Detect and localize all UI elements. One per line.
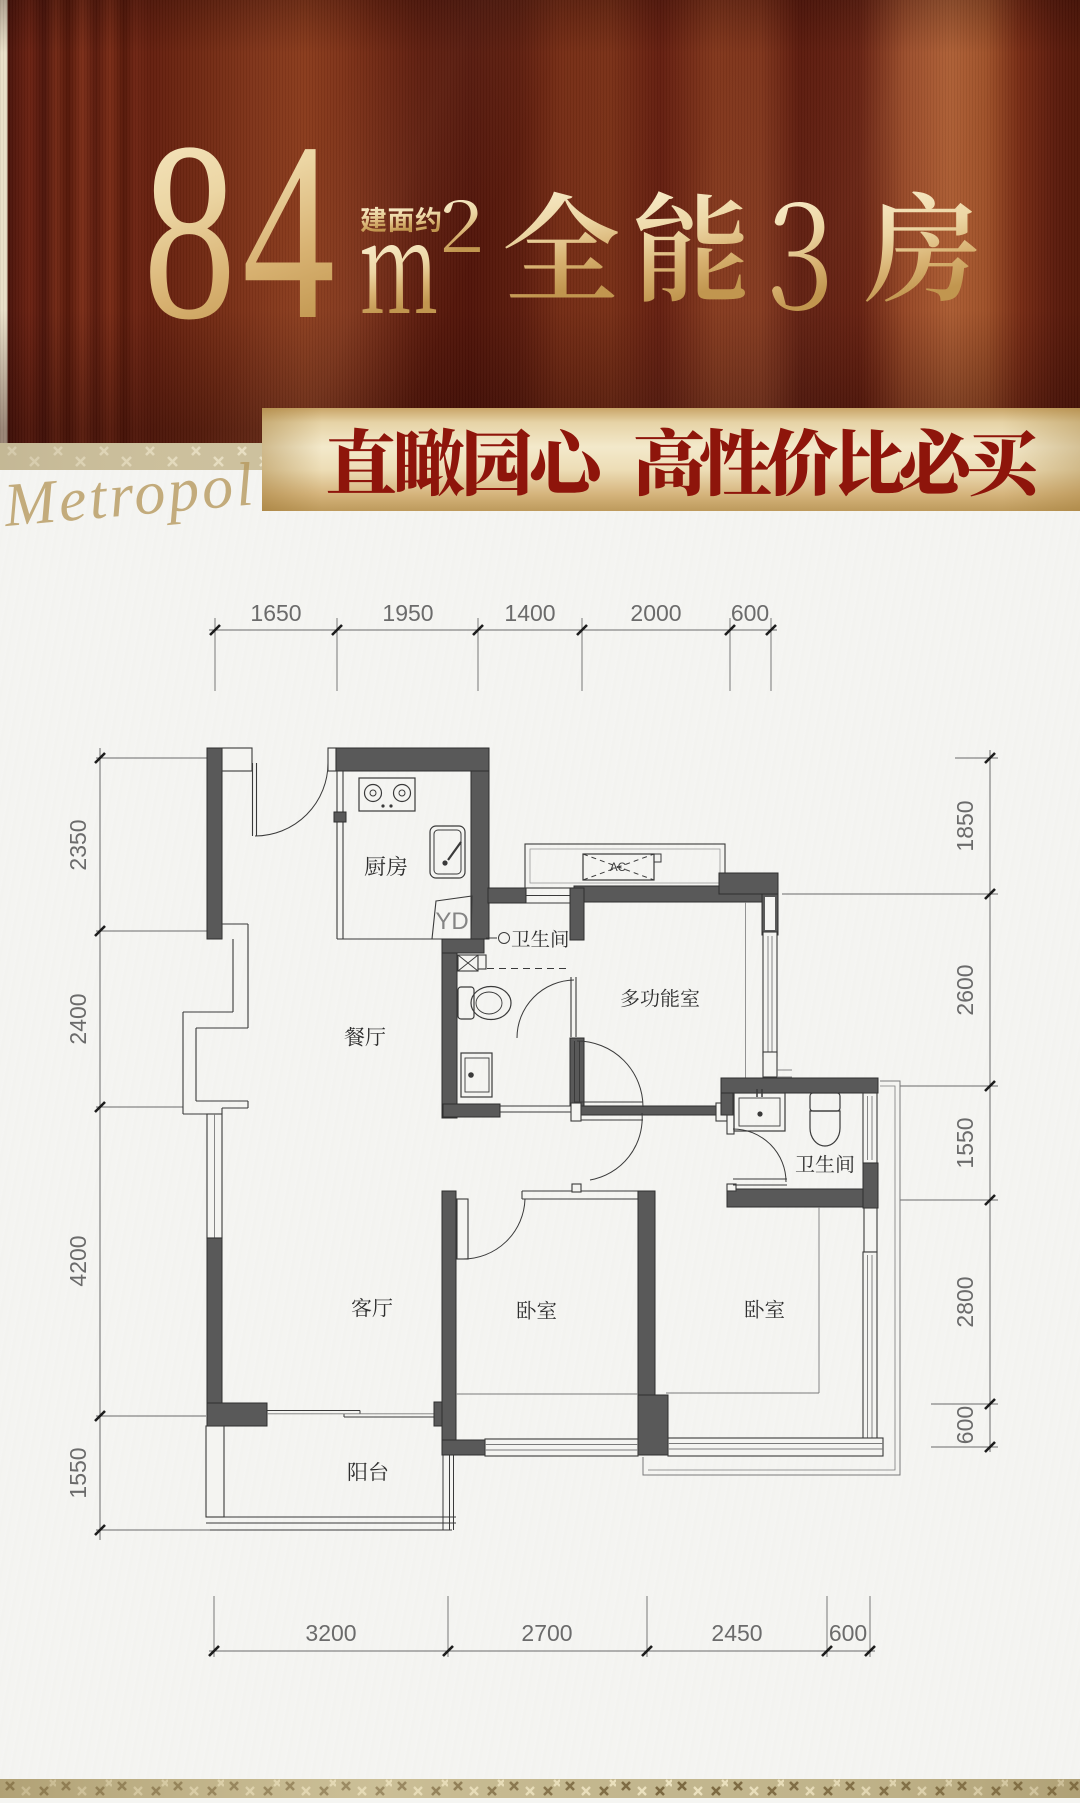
svg-text:600: 600 bbox=[829, 1620, 867, 1646]
svg-text:1400: 1400 bbox=[504, 600, 555, 626]
svg-text:2000: 2000 bbox=[630, 600, 681, 626]
svg-text:2450: 2450 bbox=[711, 1620, 762, 1646]
svg-text:600: 600 bbox=[952, 1406, 978, 1444]
svg-text:1650: 1650 bbox=[250, 600, 301, 626]
svg-text:600: 600 bbox=[731, 600, 769, 626]
svg-text:AC: AC bbox=[610, 862, 626, 874]
svg-text:YD: YD bbox=[435, 908, 468, 935]
svg-text:Metropol: Metropol bbox=[0, 462, 258, 540]
svg-text:2350: 2350 bbox=[65, 819, 91, 870]
svg-text:2700: 2700 bbox=[521, 1620, 572, 1646]
svg-text:1550: 1550 bbox=[952, 1117, 978, 1168]
svg-text:84: 84 bbox=[143, 91, 341, 373]
svg-text:2400: 2400 bbox=[65, 993, 91, 1044]
svg-text:1950: 1950 bbox=[382, 600, 433, 626]
svg-text:3200: 3200 bbox=[305, 1620, 356, 1646]
svg-text:2600: 2600 bbox=[952, 964, 978, 1015]
svg-text:4200: 4200 bbox=[65, 1235, 91, 1286]
svg-text:1550: 1550 bbox=[65, 1447, 91, 1498]
svg-text:2800: 2800 bbox=[952, 1276, 978, 1327]
svg-text:1850: 1850 bbox=[952, 800, 978, 851]
